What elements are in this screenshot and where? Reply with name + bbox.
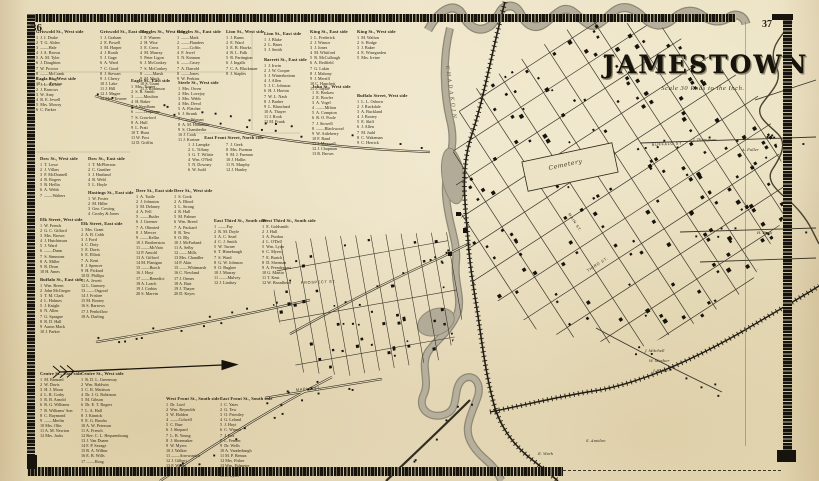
directory-column: John St., West side1 E. Brokaw2 E. Bowle… <box>312 84 358 156</box>
border-dashed <box>563 470 781 471</box>
directory-column: 7 J. Geek8 Mrs. Furman9 M. J. Furman10 J… <box>226 142 272 173</box>
directory-column-header: East Front Street, North side <box>184 135 284 141</box>
directory-column: King St., West side1 M. Walton2 S. Hodge… <box>357 29 403 60</box>
directory-entry: 12 W. Broadhead <box>262 280 324 285</box>
border-top <box>28 14 736 22</box>
directory-entry: 10 H. Ames <box>40 269 86 274</box>
border-bottom <box>27 467 563 476</box>
map-scale-note: Scale 30 Rods to the Inch. <box>603 85 803 92</box>
directory-entry: 18 A. Darling <box>81 314 127 319</box>
border-corner-br <box>777 450 796 462</box>
directory-entry: 5 Mrs. Irvine <box>357 55 403 60</box>
directory-entry: 4 Crosby & Jones <box>88 211 134 216</box>
directory-entry: 20 D. Keyes <box>174 291 220 296</box>
border-ornament-tr <box>772 14 793 20</box>
directory-column: King St., East side1 L. Frederick2 J. Wi… <box>310 29 356 91</box>
directory-entry: 12 D. Griffin <box>131 140 177 145</box>
directory-column: Centre St., East side1 M. Barnard2 W. Da… <box>40 371 86 438</box>
directory-column: West Front St., South side1 Dr. Lord2 Wm… <box>166 396 228 473</box>
directory-column: Dow St., East side1 T. McPherson2 C. Gun… <box>88 156 134 187</box>
directory-column: Ruggles St., East side1 ——Mark2 ——Flande… <box>177 29 223 81</box>
directory-column: Centre St., West side1 R. D. L. Greenway… <box>81 371 127 464</box>
directory-column: Eagle St., West side1 J. L. Barlow2 J. B… <box>36 76 82 113</box>
page-number-left: 36 <box>31 22 42 34</box>
page-number-right: 37 <box>762 19 772 30</box>
border-corner-bl <box>27 455 37 469</box>
directory-column: Lion St., East side1 J. Blake2 L. Bates3… <box>264 31 310 52</box>
directory-column: Steele St., West side1 Mrs. Owen2 Mrs. L… <box>178 80 224 142</box>
directory-column: Buffalo Street, West side1 L. L. Osborn2… <box>357 93 419 145</box>
directory-column: Elk Street, East side1 Mrs. Grant2 A. B.… <box>81 221 127 319</box>
directory-entry: 5 L. Hoyle <box>88 182 134 187</box>
directory-entry: 7 ——Walters <box>40 193 86 198</box>
directory-entry: 12 M. Frank <box>264 119 310 124</box>
directory-column: West Third St., South side1 E. Goldsmith… <box>262 218 324 285</box>
directory-entry: 9 C. Herrick <box>357 140 419 145</box>
directory-column: Elk Street, West side1 W. French2 G. C. … <box>40 217 86 274</box>
title-block: JAMESTOWN Scale 30 Rods to the Inch. <box>603 50 803 92</box>
directory-column: Buffalo St., East side1 Wm. Breen2 John … <box>40 277 86 334</box>
directory-column: East Front Street, North side <box>184 135 284 141</box>
directory-entry: 6 C. Parker <box>36 107 82 112</box>
directory-entry: 10 J. Parker <box>40 329 86 334</box>
directory-column: Barrett St., East side1 J. Irwin2 J. W. … <box>264 57 310 124</box>
map-title: JAMESTOWN <box>603 50 803 79</box>
directory-entry: 13 R. Brown <box>312 151 358 156</box>
directory-column: Hastings St., East side1 W. Foster2 M. H… <box>88 190 134 216</box>
atlas-page: CemeteryCHADAKOINMAPLE ST.PROSPECT ST.MA… <box>0 0 819 481</box>
directory-entry: 12 Mrs. Jacks <box>40 433 86 438</box>
border-left <box>27 14 35 464</box>
directory-entry: 17 ——Hoag <box>81 459 127 464</box>
border-right <box>783 17 792 453</box>
directory-column: Eagle St., East side1 Mrs. Turner2 S. B.… <box>131 78 177 145</box>
directory-column: Dow St., West side1 T. Lowe2 J. Villars3… <box>40 156 86 198</box>
directory-entry: 12 J. Hanley <box>226 167 272 172</box>
directory-entry: 3 J. Smith <box>264 47 310 52</box>
